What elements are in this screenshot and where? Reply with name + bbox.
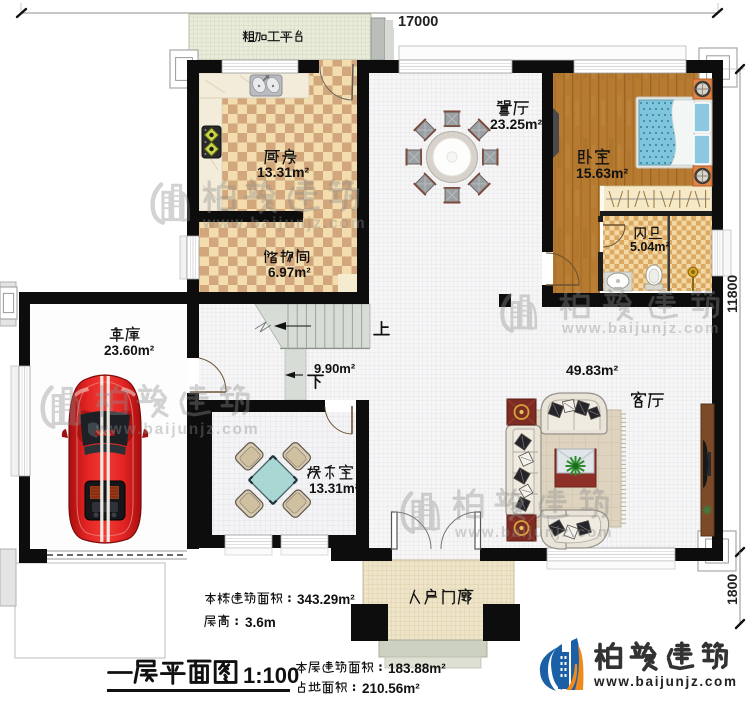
svg-text:23.60m²: 23.60m²: [104, 343, 155, 358]
svg-text:13.31m²: 13.31m²: [309, 481, 360, 496]
svg-text:5.04m²: 5.04m²: [630, 240, 670, 254]
svg-text:9.90m²: 9.90m²: [314, 361, 356, 376]
svg-text:15.63m²: 15.63m²: [576, 165, 628, 181]
svg-text:1800: 1800: [724, 574, 740, 605]
svg-text:49.83m²: 49.83m²: [566, 362, 618, 378]
svg-text:1:100: 1:100: [243, 663, 299, 688]
svg-text:3.6m: 3.6m: [245, 615, 276, 630]
svg-text:www.baijunjz.com: www.baijunjz.com: [202, 215, 367, 232]
svg-text:www.baijunjz.com: www.baijunjz.com: [593, 674, 738, 689]
svg-text:183.88m²: 183.88m²: [388, 661, 446, 676]
svg-text:11800: 11800: [724, 275, 740, 313]
svg-text:23.25m²: 23.25m²: [490, 116, 542, 132]
svg-text:343.29m²: 343.29m²: [297, 592, 355, 607]
svg-text:www.baijunjz.com: www.baijunjz.com: [454, 524, 613, 541]
svg-text:210.56m²: 210.56m²: [362, 681, 420, 696]
svg-text:13.31m²: 13.31m²: [257, 164, 309, 180]
svg-text:www.baijunjz.com: www.baijunjz.com: [95, 421, 260, 438]
svg-text:17000: 17000: [398, 14, 438, 30]
svg-text:www.baijunjz.com: www.baijunjz.com: [561, 320, 720, 337]
svg-text:6.97m²: 6.97m²: [268, 265, 311, 280]
